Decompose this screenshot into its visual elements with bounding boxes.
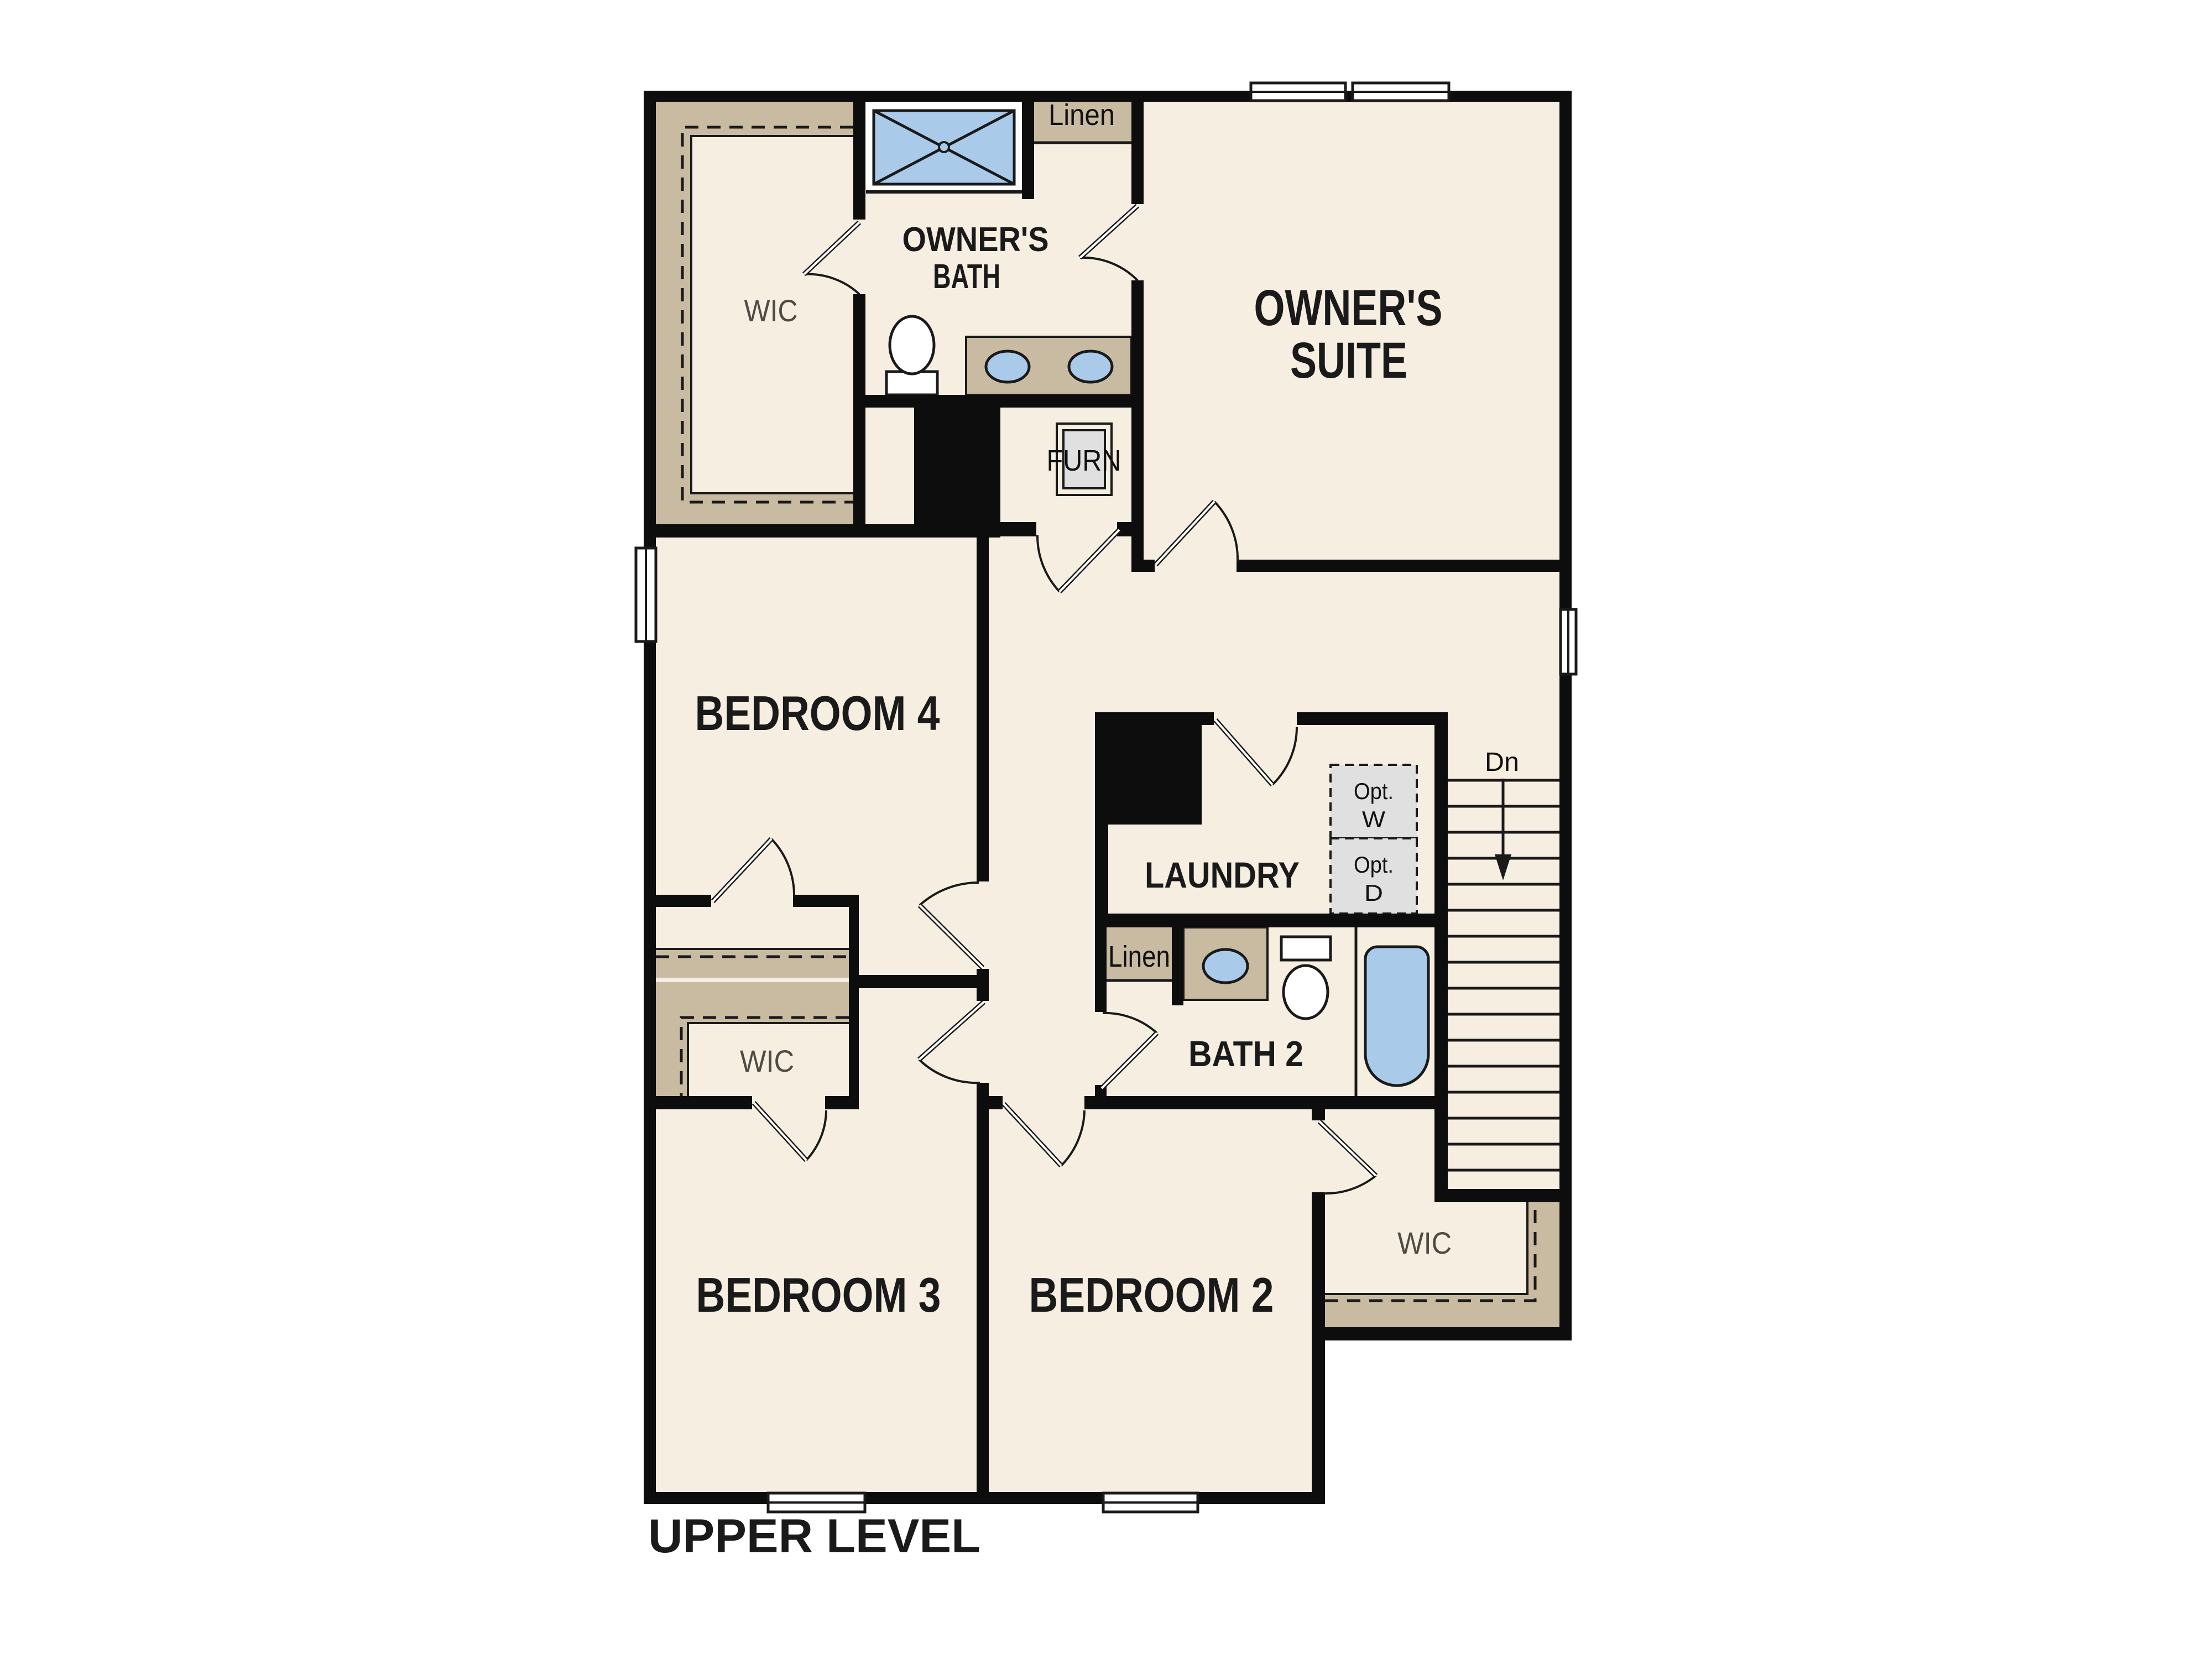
svg-text:WIC: WIC <box>740 1044 794 1078</box>
svg-text:BEDROOM 3: BEDROOM 3 <box>696 1267 941 1322</box>
svg-text:WIC: WIC <box>744 293 798 328</box>
svg-text:BATH: BATH <box>933 258 1000 296</box>
svg-text:SUITE: SUITE <box>1290 332 1407 389</box>
svg-text:Linen: Linen <box>1108 940 1170 973</box>
svg-text:Opt.: Opt. <box>1354 852 1394 878</box>
svg-text:FURN: FURN <box>1047 444 1121 477</box>
svg-text:D: D <box>1364 880 1383 906</box>
svg-text:W: W <box>1362 806 1385 832</box>
svg-text:Dn: Dn <box>1485 748 1519 777</box>
svg-text:BATH 2: BATH 2 <box>1188 1034 1303 1074</box>
svg-text:LAUNDRY: LAUNDRY <box>1145 854 1300 895</box>
svg-text:Opt.: Opt. <box>1354 778 1394 804</box>
svg-text:OWNER'S: OWNER'S <box>902 221 1049 259</box>
svg-text:Linen: Linen <box>1048 98 1115 132</box>
svg-text:UPPER LEVEL: UPPER LEVEL <box>648 1510 980 1563</box>
svg-text:BEDROOM 2: BEDROOM 2 <box>1029 1267 1274 1322</box>
svg-text:OWNER'S: OWNER'S <box>1254 280 1443 336</box>
svg-text:WIC: WIC <box>1397 1225 1452 1260</box>
svg-text:BEDROOM 4: BEDROOM 4 <box>695 686 940 740</box>
